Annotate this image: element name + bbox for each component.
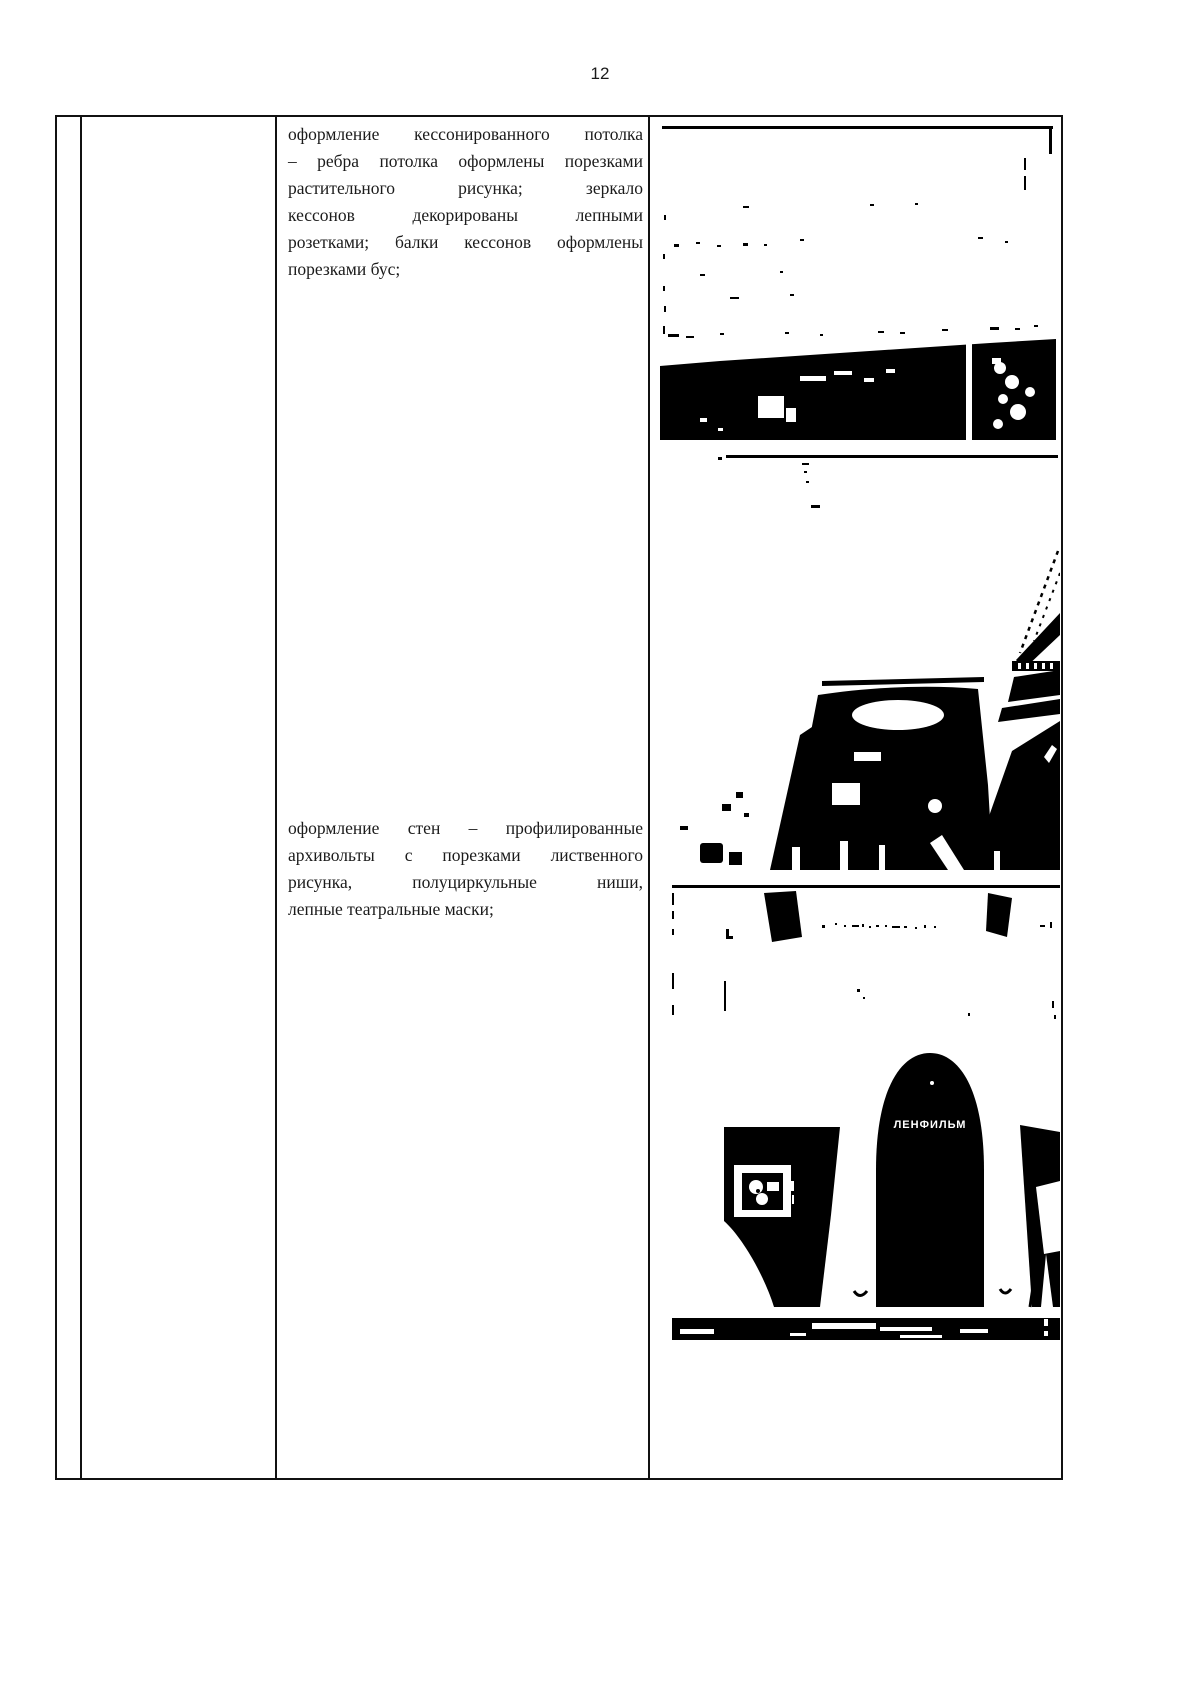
lenfilm-sign-text: ЛЕНФИЛЬМ xyxy=(894,1119,967,1131)
text-line: розетками; балки кессонов оформлены xyxy=(288,229,643,256)
description-cell: оформление кессонированного потолка – ре… xyxy=(277,117,648,1478)
coffered-ceiling-photo xyxy=(660,120,1056,440)
paragraph-wall-decor: оформление стен – профилированные архиво… xyxy=(288,815,643,923)
lenfilm-arch-photo-graphic: ЛЕНФИЛЬМ xyxy=(672,885,1060,1345)
text-line: кессонов декорированы лепными xyxy=(288,202,643,229)
text-line: оформление стен – профилированные xyxy=(288,815,643,842)
paragraph-ceiling-decor: оформление кессонированного потолка – ре… xyxy=(288,121,643,283)
interior-staircase-photo-graphic xyxy=(672,455,1060,870)
text-line: архивольты с порезками лиственного xyxy=(288,842,643,869)
photo2-dark-shapes xyxy=(680,613,1060,870)
page-number: 12 xyxy=(0,64,1200,84)
interior-staircase-photo xyxy=(672,455,1060,870)
text-line: рисунка, полуциркульные ниши, xyxy=(288,869,643,896)
photo-cell: ЛЕНФИЛЬМ xyxy=(650,117,1059,1478)
document-table: оформление кессонированного потолка – ре… xyxy=(55,115,1063,1480)
text-line: порезками бус; xyxy=(288,256,643,283)
text-line: – ребра потолка оформлены порезками xyxy=(288,148,643,175)
photo1-marks xyxy=(660,126,1056,440)
table-column-divider-1 xyxy=(80,117,82,1478)
text-line: растительного рисунка; зеркало xyxy=(288,175,643,202)
text-line: оформление кессонированного потолка xyxy=(288,121,643,148)
lenfilm-arch-photo: ЛЕНФИЛЬМ xyxy=(672,885,1060,1345)
photo2-frame-marks xyxy=(718,455,1058,508)
coffered-ceiling-photo-graphic xyxy=(660,120,1056,440)
text-line: лепные театральные маски; xyxy=(288,896,643,923)
